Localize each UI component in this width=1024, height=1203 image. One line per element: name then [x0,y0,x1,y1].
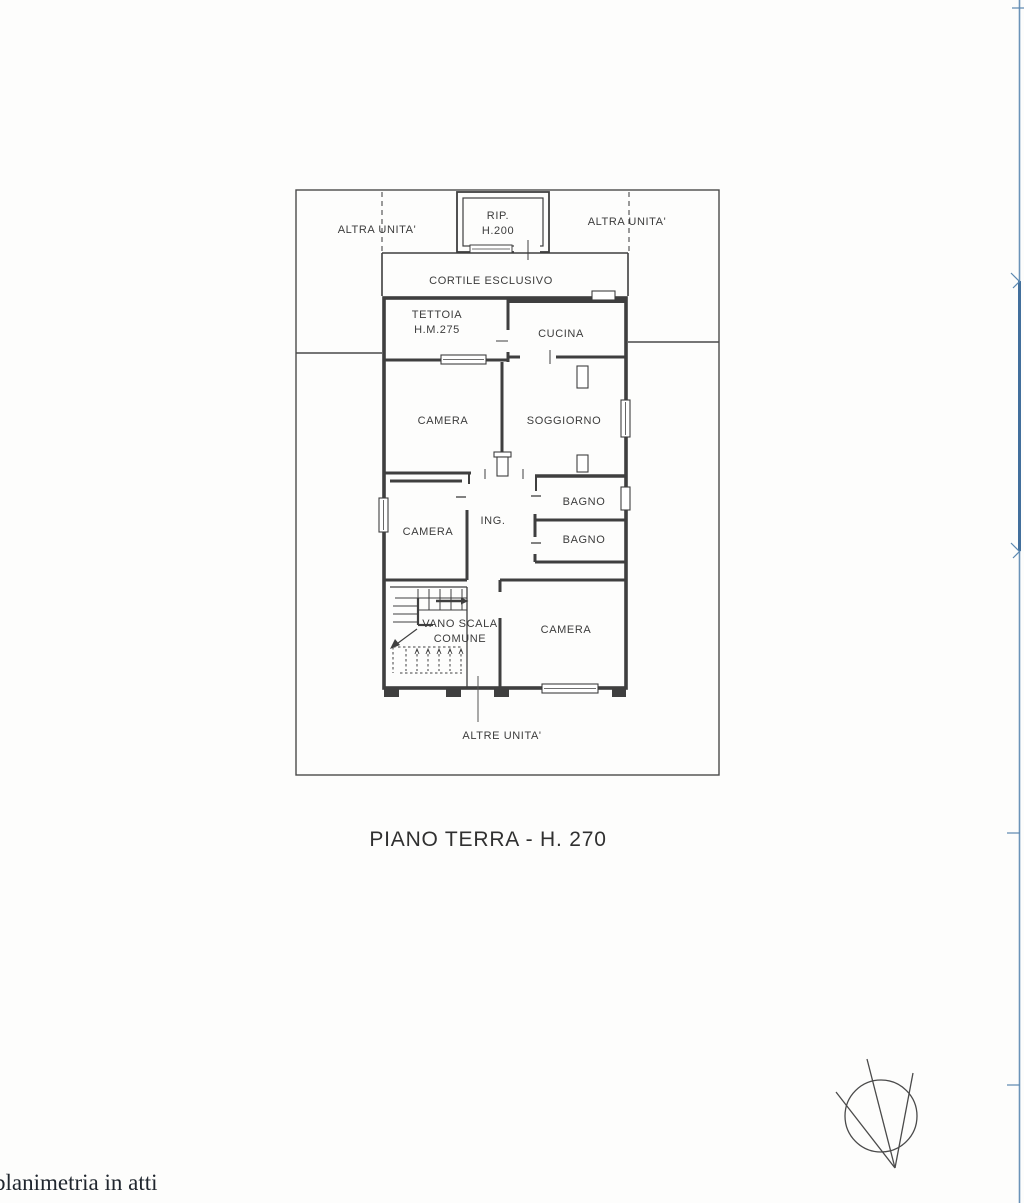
label-altre-unita: ALTRE UNITA' [462,729,541,744]
north-arrow-icon [836,1059,917,1168]
label-camera-top: CAMERA [418,414,469,429]
label-altra-unita-right: ALTRA UNITA' [588,215,667,230]
label-vano-scala-line1: VANO SCALA [422,617,498,632]
label-bagno-bottom: BAGNO [563,533,606,548]
label-rip-line1: RIP. [482,209,514,224]
label-rip: RIP. H.200 [482,209,514,239]
label-camera-bottom: CAMERA [541,623,592,638]
label-vano-scala-line2: COMUNE [422,632,498,647]
label-vano-scala: VANO SCALA COMUNE [422,617,498,647]
plan-title: PIANO TERRA - H. 270 [369,828,606,852]
label-tettoia-line2: H.M.275 [412,323,462,338]
label-rip-line2: H.200 [482,224,514,239]
label-tettoia: TETTOIA H.M.275 [412,308,462,338]
scanned-floorplan-page: ALTRA UNITA' ALTRA UNITA' RIP. H.200 COR… [0,0,1024,1203]
scan-edge-line [1007,0,1024,1203]
label-camera-mid: CAMERA [403,525,454,540]
label-cortile: CORTILE ESCLUSIVO [429,274,553,289]
label-cucina: CUCINA [538,327,584,342]
footer-caption: planimetria in atti [0,1170,158,1196]
label-altra-unita-left: ALTRA UNITA' [338,223,417,238]
label-soggiorno: SOGGIORNO [527,414,601,429]
label-bagno-top: BAGNO [563,495,606,510]
floor-plan-drawing [0,0,1024,1203]
label-tettoia-line1: TETTOIA [412,308,462,323]
label-ing: ING. [480,514,505,529]
